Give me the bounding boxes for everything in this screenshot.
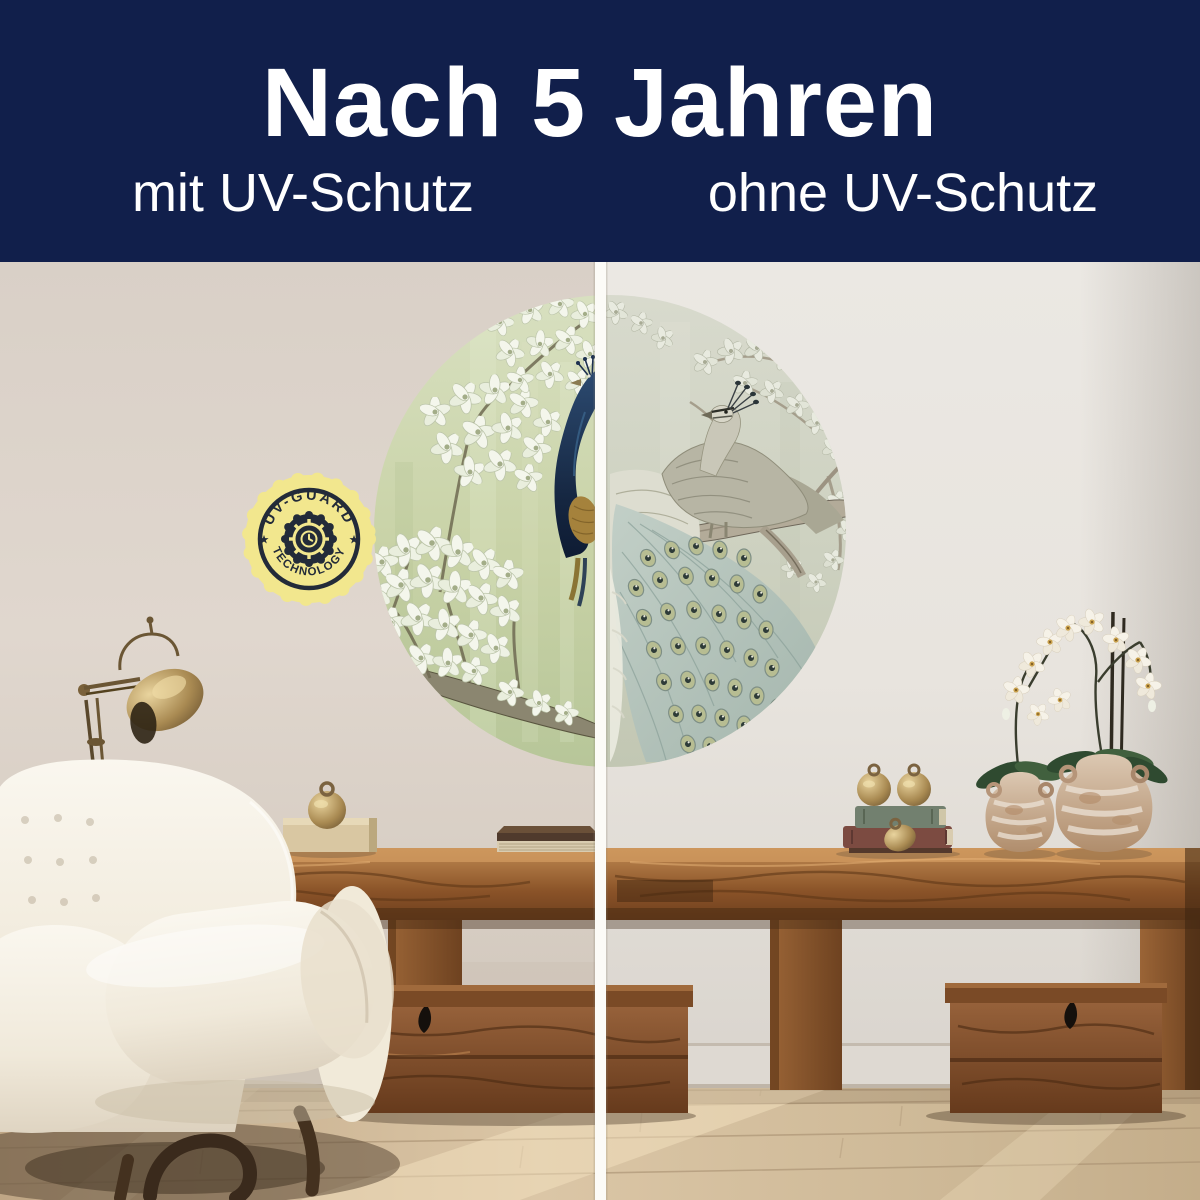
room-scene-canvas: UV-GUARD TECHNOLOGY ★ ★ <box>0 262 1200 1200</box>
terracotta-vase-small <box>986 772 1055 852</box>
terracotta-vase-large <box>1056 754 1153 852</box>
comparison-divider <box>594 262 608 1200</box>
uv-protection-comparison-image: Nach 5 Jahren mit UV-Schutz ohne UV-Schu… <box>0 0 1200 1200</box>
clock-icon <box>302 532 317 547</box>
header-title: Nach 5 Jahren <box>0 54 1200 151</box>
book-flat <box>497 826 597 852</box>
header-band: Nach 5 Jahren mit UV-Schutz ohne UV-Schu… <box>0 0 1200 262</box>
star-icon: ★ <box>259 533 270 547</box>
label-with-uv: mit UV-Schutz <box>132 166 474 220</box>
label-without-uv: ohne UV-Schutz <box>708 166 1098 220</box>
star-icon: ★ <box>349 533 360 547</box>
room-scene: UV-GUARD TECHNOLOGY ★ ★ <box>0 262 1200 1200</box>
drawer-chest-right <box>926 983 1186 1125</box>
